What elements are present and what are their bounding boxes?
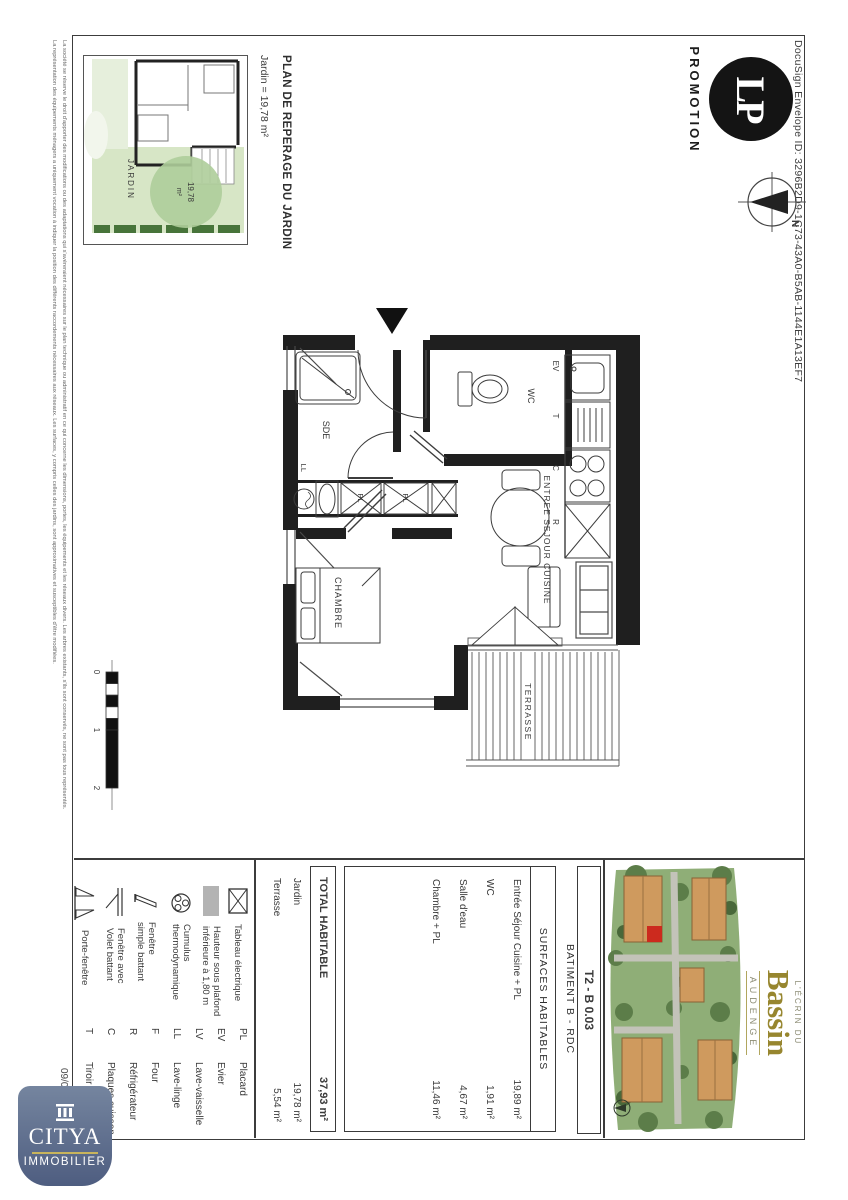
entrance-arrow-icon — [376, 308, 408, 334]
room-chambre: CHAMBRE — [333, 577, 343, 629]
ecrin-name: Bassin — [763, 930, 793, 1096]
fenetre-simple-icon — [134, 892, 158, 912]
abbr-row: LVLave-vaisselle — [193, 1028, 204, 1125]
label-pl2: PL — [356, 493, 365, 502]
label-c: C — [551, 465, 560, 471]
hedge-icon — [94, 225, 240, 233]
garden-circle-unit: m² — [175, 188, 182, 197]
north-arrow-icon — [750, 190, 788, 214]
garden-mini-plan: 19,78 m² JARDIN — [83, 55, 248, 245]
table-row: Entrée Séjour Cuisine + PL19,89 m² — [503, 867, 530, 1131]
label-r: R — [551, 519, 560, 525]
ecrin-logo: L'ÉCRIN DU Bassin AUDENGE — [745, 930, 802, 1096]
column-icon — [54, 1104, 76, 1122]
reperage-subtitle: Jardin = 19,78 m² — [258, 55, 270, 137]
toilet-icon — [458, 372, 508, 406]
legend-divider — [255, 858, 257, 1138]
french-door-swings — [472, 607, 558, 645]
citya-logo: CITYA IMMOBILIER — [18, 1086, 112, 1186]
hauteur-plafond-icon — [203, 886, 219, 916]
lot-number: T2 - B 0.03 — [577, 866, 601, 1134]
washbasin-icon — [319, 484, 335, 514]
legend-item: Fenêtre simple battant — [134, 892, 158, 981]
tableau-electrique-icon — [228, 888, 248, 914]
table-row: Chambre + PL11,46 m² — [422, 867, 449, 1131]
porte-fenetre-icon — [74, 886, 96, 920]
dining-set — [491, 470, 549, 566]
label-pl1: PL — [401, 493, 410, 502]
sitepanel-divider — [604, 858, 606, 1138]
abbr-row: LLLave-linge — [171, 1028, 182, 1108]
legend-item: Hauteur sous plafond inférieure à 1,80 m — [200, 886, 222, 1016]
highlighted-unit — [647, 926, 662, 942]
label-t: T — [551, 414, 560, 419]
table-row: WC1,91 m² — [476, 867, 503, 1131]
legend-item: Tableau électrique — [228, 888, 248, 1001]
disclaimer-line-2: La représentation des équipements ménage… — [51, 40, 57, 664]
room-wc: WC — [526, 389, 536, 404]
garden-circle-value: 19,78 — [186, 182, 195, 203]
label-ev: EV — [551, 361, 560, 372]
citya-name: CITYA — [29, 1124, 102, 1150]
svg-text:2: 2 — [92, 786, 101, 791]
legend-item: Fenêtre avec Volet battant — [104, 888, 126, 983]
landscape-sheet: DocuSign Envelope ID: 3296B2D9-1C73-43A0… — [0, 0, 848, 1200]
lp-monogram: LP — [728, 76, 775, 121]
abbr-row: EVEvier — [215, 1028, 226, 1085]
abbr-row: TTiroir — [83, 1028, 94, 1084]
panel-divider — [74, 858, 805, 860]
room-sde: SDE — [321, 421, 331, 440]
annex-row-terrasse: Terrasse5,54 m² — [271, 878, 282, 1122]
lp-promotion-label: PROMOTION — [687, 40, 702, 160]
reperage-title: PLAN DE REPERAGE DU JARDIN — [280, 55, 292, 249]
building-floor: BATIMENT B - RDC — [564, 866, 576, 1132]
label-ll: LL — [299, 464, 308, 472]
surfaces-table: SURFACES HABITABLES Entrée Séjour Cuisin… — [344, 866, 556, 1132]
disclaimer-line-1: La société se réserve le droit d'apporte… — [61, 40, 67, 809]
abbr-row: RRéfrigérateur — [127, 1028, 138, 1120]
lp-promotion-logo: LP — [709, 57, 793, 141]
ecrin-city: AUDENGE — [746, 971, 760, 1056]
svg-text:1: 1 — [92, 728, 101, 733]
annex-row-jardin: Jardin19,78 m² — [291, 878, 302, 1122]
cumulus-icon — [170, 892, 192, 914]
hob-icon — [588, 456, 604, 472]
citya-divider — [32, 1152, 98, 1154]
table-icon — [491, 488, 549, 546]
legend-item: Cumulus thermodynamique — [170, 892, 192, 1000]
abbr-row: PLPlacard — [237, 1028, 248, 1096]
abbr-row: FFour — [149, 1028, 160, 1083]
legend-item: Porte-fenêtre — [74, 886, 96, 985]
scale-bar: 0 1 2 — [86, 660, 128, 810]
fenetre-volet-icon — [104, 888, 126, 918]
compass-north-label: N — [789, 220, 800, 227]
floor-plan: EV T C R WC PL PL — [276, 300, 648, 780]
site-plan-aerial — [606, 862, 744, 1136]
jardin-label: JARDIN — [126, 159, 135, 200]
surfaces-header: SURFACES HABITABLES — [530, 867, 555, 1131]
terrasse-deck — [466, 638, 619, 766]
total-habitable: TOTAL HABITABLE37,93 m² — [310, 866, 336, 1132]
svg-text:0: 0 — [92, 670, 101, 675]
compass: N — [736, 168, 808, 243]
citya-subtitle: IMMOBILIER — [24, 1156, 107, 1168]
room-terrasse: TERRASSE — [523, 683, 533, 741]
table-row: Salle d'eau4,67 m² — [449, 867, 476, 1131]
scanned-floorplan-page: DocuSign Envelope ID: 3296B2D9-1C73-43A0… — [0, 0, 848, 1200]
